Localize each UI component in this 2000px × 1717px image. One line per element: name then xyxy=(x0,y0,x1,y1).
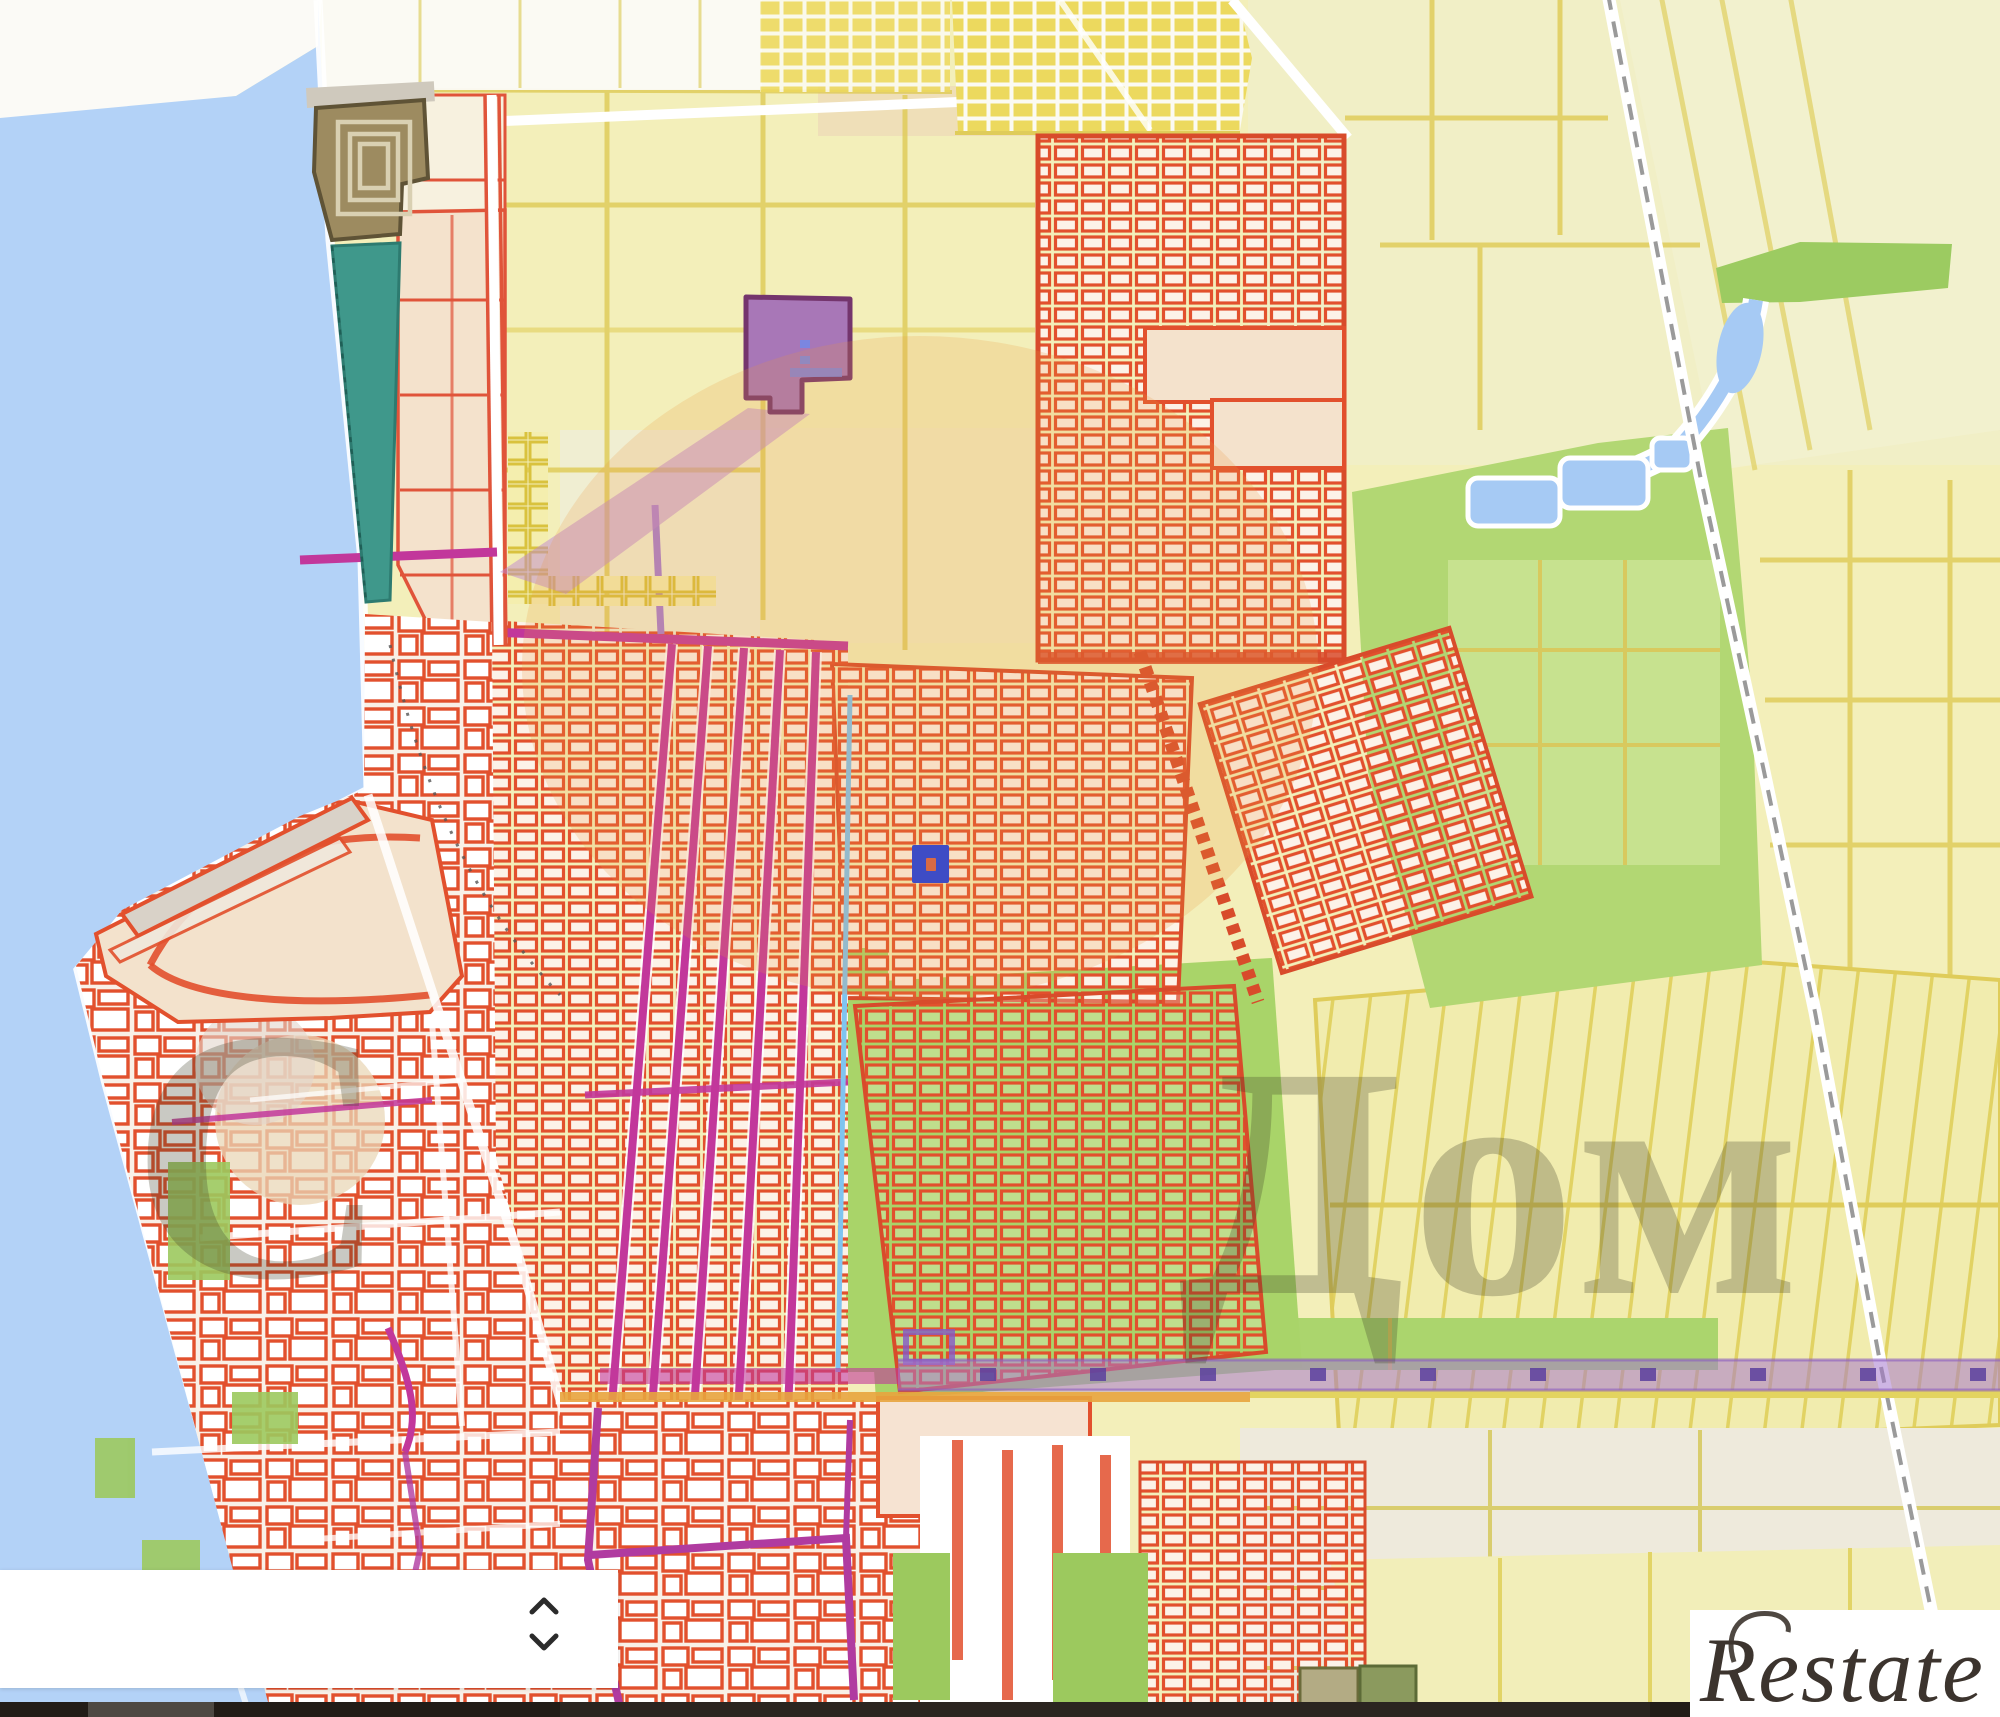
bottom-bar-segment xyxy=(560,1702,1650,1717)
chevron-up-icon xyxy=(527,1595,561,1617)
expand-panel-button[interactable] xyxy=(520,1590,568,1622)
highlight-circle xyxy=(522,336,1318,1000)
selected-parcel-marker[interactable] xyxy=(912,845,949,883)
bottom-sheet-panel xyxy=(0,1570,618,1688)
map-canvas[interactable] xyxy=(0,0,2000,1717)
bottom-bar-segment xyxy=(88,1702,214,1717)
chevron-down-icon xyxy=(527,1631,561,1653)
restate-logo-text: Restate xyxy=(1700,1620,1985,1717)
marker-center xyxy=(926,858,936,871)
map-screenshot: С Дом Restate xyxy=(0,0,2000,1717)
restate-logo-box: Restate xyxy=(1690,1610,2000,1717)
collapse-panel-button[interactable] xyxy=(520,1626,568,1658)
